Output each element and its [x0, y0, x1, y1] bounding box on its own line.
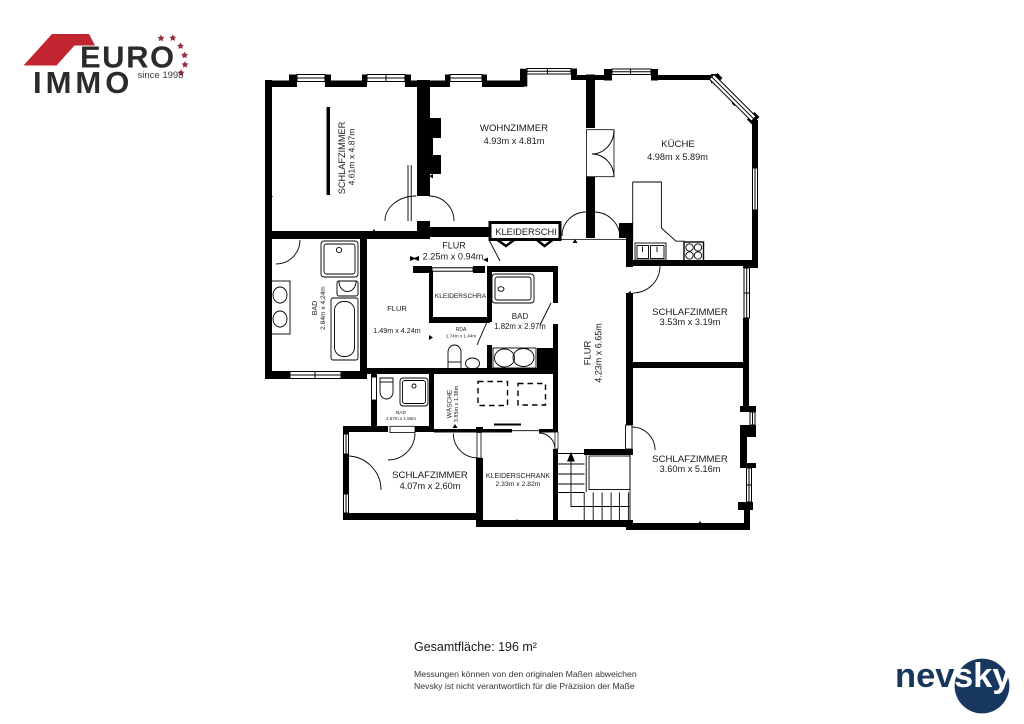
svg-text:KLEIDERSCHI: KLEIDERSCHI	[495, 227, 556, 237]
svg-text:sky: sky	[954, 657, 1012, 695]
svg-text:2.33m x 2.82m: 2.33m x 2.82m	[496, 481, 541, 488]
svg-text:Nevsky ist nicht verantwortlic: Nevsky ist nicht verantwortlich für die …	[414, 681, 635, 691]
svg-text:KÜCHE: KÜCHE	[661, 139, 695, 150]
svg-text:2.25m x 0.94m: 2.25m x 0.94m	[423, 252, 484, 262]
svg-text:4.93m x 4.81m: 4.93m x 4.81m	[484, 136, 545, 146]
svg-text:RDA: RDA	[456, 327, 467, 333]
svg-text:nev: nev	[895, 657, 955, 695]
svg-text:FLUR: FLUR	[387, 304, 407, 313]
svg-text:3.53m x 3.19m: 3.53m x 3.19m	[660, 317, 721, 327]
svg-text:WÄSCHE: WÄSCHE	[446, 389, 454, 418]
svg-text:3.85m x 1.38m: 3.85m x 1.38m	[454, 385, 460, 422]
svg-text:SCHLAFZIMMER: SCHLAFZIMMER	[392, 470, 468, 481]
svg-text:KLEIDERSCHRANK: KLEIDERSCHRANK	[486, 473, 551, 480]
svg-text:3.60m x 5.16m: 3.60m x 5.16m	[660, 464, 721, 474]
svg-text:2.84m x 4.24m: 2.84m x 4.24m	[320, 286, 327, 330]
svg-text:4.07m x 2.60m: 4.07m x 2.60m	[400, 481, 461, 491]
svg-text:1.82m x 2.97m: 1.82m x 2.97m	[494, 322, 546, 331]
svg-text:FLUR: FLUR	[442, 241, 466, 251]
svg-text:Gesamtfläche: 196 m²: Gesamtfläche: 196 m²	[414, 640, 537, 654]
svg-text:KLEIDERSCHRA: KLEIDERSCHRA	[435, 293, 487, 300]
svg-text:1.67m x 1.55m: 1.67m x 1.55m	[386, 416, 416, 421]
svg-text:BAD: BAD	[312, 301, 319, 315]
svg-text:4.98m x 5.89m: 4.98m x 5.89m	[647, 152, 708, 162]
svg-text:FLUR: FLUR	[582, 341, 593, 366]
svg-text:WOHNZIMMER: WOHNZIMMER	[480, 123, 548, 134]
svg-text:SCHLAFZIMMER: SCHLAFZIMMER	[337, 121, 347, 194]
svg-text:4.23m x 6.65m: 4.23m x 6.65m	[594, 323, 604, 383]
svg-text:1.74m x 1.44m: 1.74m x 1.44m	[446, 334, 477, 339]
svg-text:BAD: BAD	[512, 312, 529, 321]
svg-text:1.49m x 4.24m: 1.49m x 4.24m	[373, 326, 421, 335]
svg-text:4.61m x 4.87m: 4.61m x 4.87m	[347, 129, 357, 186]
svg-text:since 1993: since 1993	[138, 70, 184, 81]
svg-text:Messungen können von den origi: Messungen können von den originalen Maße…	[414, 669, 637, 679]
svg-text:IMMO: IMMO	[33, 65, 133, 100]
